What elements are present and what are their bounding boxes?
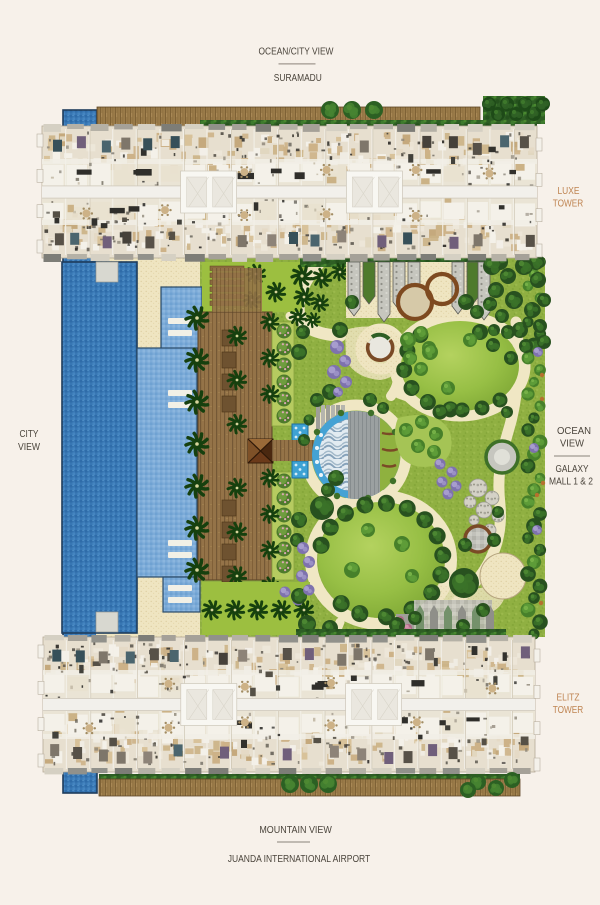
svg-text:TOWER: TOWER bbox=[553, 198, 584, 210]
svg-text:SURAMADU: SURAMADU bbox=[274, 72, 322, 84]
svg-text:MALL 1 & 2: MALL 1 & 2 bbox=[549, 476, 593, 488]
svg-text:LUXE: LUXE bbox=[558, 185, 580, 197]
svg-text:JUANDA INTERNATIONAL AIRPORT: JUANDA INTERNATIONAL AIRPORT bbox=[228, 853, 371, 865]
svg-text:VIEW: VIEW bbox=[18, 441, 40, 453]
svg-text:CITY: CITY bbox=[20, 428, 39, 440]
svg-text:GALAXY: GALAXY bbox=[556, 463, 589, 475]
svg-text:VIEW: VIEW bbox=[560, 438, 584, 450]
svg-text:OCEAN: OCEAN bbox=[557, 425, 591, 437]
svg-text:MOUNTAIN VIEW: MOUNTAIN VIEW bbox=[259, 824, 332, 836]
svg-text:TOWER: TOWER bbox=[553, 704, 584, 716]
svg-text:ELITZ: ELITZ bbox=[557, 692, 580, 704]
svg-text:OCEAN/CITY VIEW: OCEAN/CITY VIEW bbox=[259, 46, 334, 58]
